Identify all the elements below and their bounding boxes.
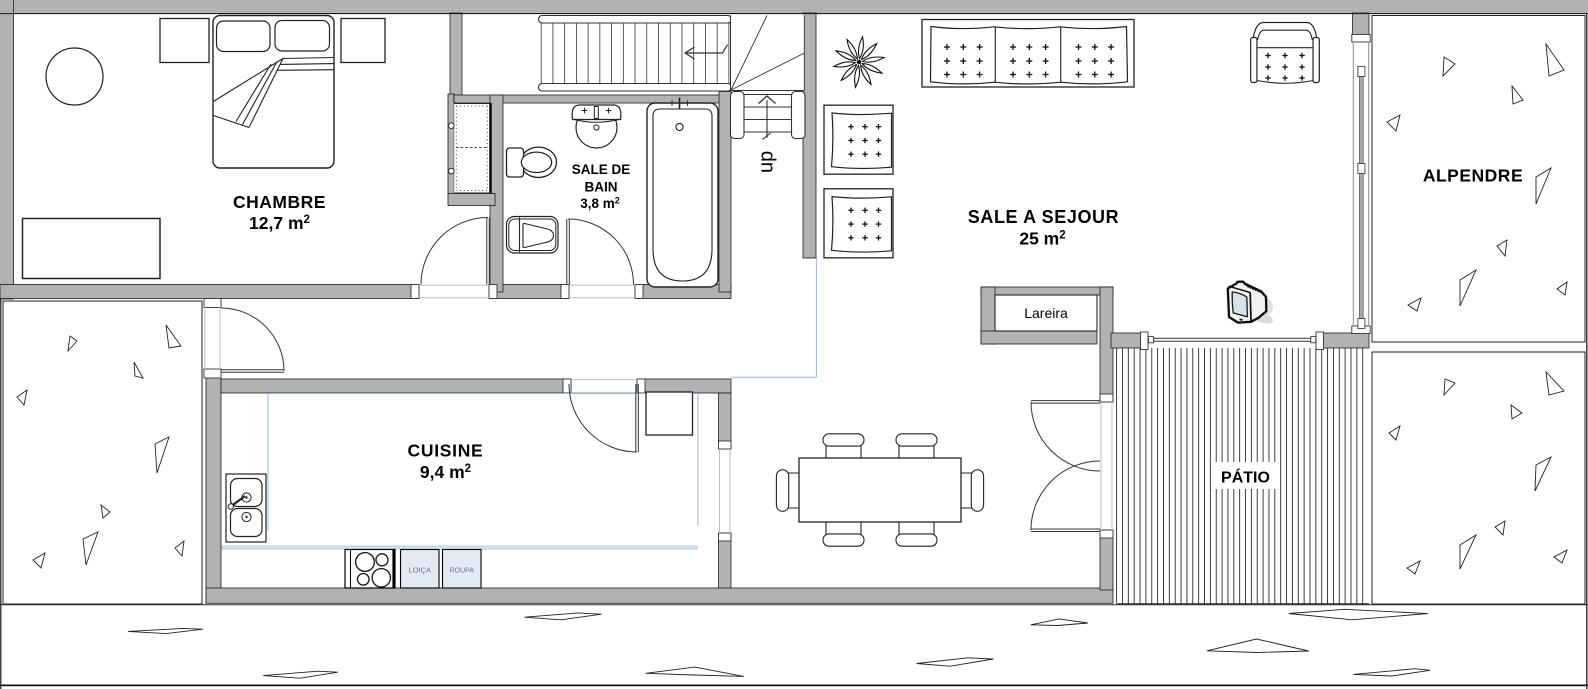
svg-text:Lareira: Lareira — [1024, 305, 1068, 321]
svg-text:3,8 m2: 3,8 m2 — [580, 196, 620, 212]
svg-text:25 m2: 25 m2 — [1019, 229, 1065, 249]
svg-text:12,7 m2: 12,7 m2 — [249, 213, 310, 233]
svg-text:LOIÇA: LOIÇA — [409, 566, 432, 575]
svg-text:CUISINE: CUISINE — [408, 441, 484, 461]
svg-text:SALE DE: SALE DE — [572, 162, 631, 177]
svg-text:BAIN: BAIN — [585, 180, 618, 195]
svg-text:ALPENDRE: ALPENDRE — [1423, 166, 1523, 186]
svg-text:CHAMBRE: CHAMBRE — [233, 192, 326, 212]
svg-text:ROUPA: ROUPA — [450, 568, 475, 575]
svg-text:9,4 m2: 9,4 m2 — [420, 462, 471, 482]
svg-text:PÁTIO: PÁTIO — [1221, 468, 1270, 487]
svg-text:up: up — [756, 151, 778, 173]
svg-text:SALE A SEJOUR: SALE A SEJOUR — [968, 207, 1120, 227]
